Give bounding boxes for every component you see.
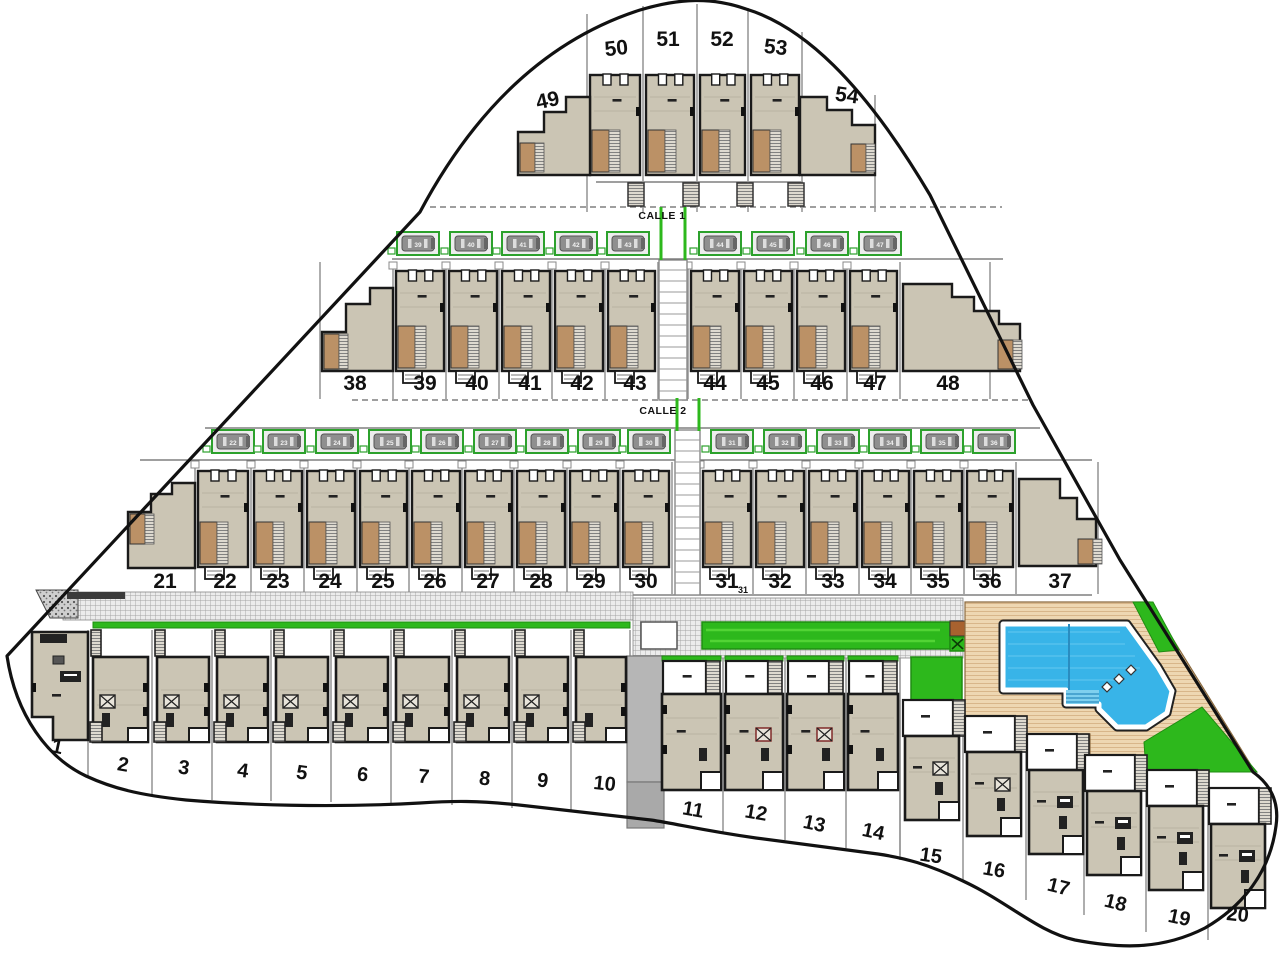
- terrace-notch: [489, 728, 509, 742]
- roof-notch: [493, 470, 501, 481]
- plot-corner-marker: [405, 461, 413, 468]
- building-unit: [307, 470, 355, 579]
- plot-number-45: 45: [756, 372, 780, 395]
- svg-text:32: 32: [781, 440, 789, 447]
- patio: [467, 522, 484, 564]
- door: [585, 713, 593, 727]
- building-unit: [1027, 734, 1089, 854]
- plot-number-25: 25: [371, 570, 395, 593]
- parking-space: 29: [569, 430, 620, 453]
- terrace-notch: [763, 772, 783, 790]
- parking-corner-marker: [619, 446, 626, 452]
- stairs: [869, 326, 880, 368]
- plot-corner-marker: [616, 461, 624, 468]
- stairs: [829, 661, 843, 694]
- building-unit: [502, 270, 550, 383]
- patio: [758, 522, 775, 564]
- stairs: [828, 522, 839, 564]
- building-unit: [608, 270, 655, 383]
- svg-text:23: 23: [280, 440, 288, 447]
- plot-number-23: 23: [266, 570, 289, 593]
- roof-notch: [732, 470, 740, 481]
- patio: [200, 522, 217, 564]
- svg-text:47: 47: [876, 242, 884, 249]
- roof-notch: [529, 470, 537, 481]
- pool-gate-icon: [950, 637, 965, 651]
- roof-notch: [651, 470, 659, 481]
- roof-notch: [408, 270, 416, 281]
- plot-corner-marker: [495, 262, 503, 269]
- stairs: [145, 514, 154, 544]
- building-unit: [1085, 755, 1147, 875]
- patio: [705, 522, 722, 564]
- wall-tick: [383, 683, 388, 692]
- svg-text:41: 41: [519, 242, 527, 249]
- wall-mark: [592, 495, 601, 498]
- parking-corner-marker: [388, 248, 395, 254]
- patio: [398, 326, 415, 368]
- building-unit: [623, 470, 669, 579]
- roof-notch: [514, 270, 522, 281]
- table: [60, 671, 81, 682]
- stairs: [665, 130, 676, 172]
- patio: [916, 522, 933, 564]
- plot-number-4: 4: [236, 759, 251, 782]
- plot-number-46: 46: [810, 372, 833, 395]
- entry-step: [154, 722, 166, 742]
- plot-corner-marker: [601, 262, 609, 269]
- stairs: [986, 522, 997, 564]
- wall-mark: [629, 295, 638, 298]
- stairs: [627, 326, 638, 368]
- wall-mark: [471, 295, 480, 298]
- plot-number-32: 32: [768, 570, 791, 593]
- parking-space: 43: [598, 232, 649, 255]
- parking-corner-marker: [412, 446, 419, 452]
- wall-mark: [936, 495, 945, 498]
- entry-step: [393, 722, 405, 742]
- parking-corner-marker: [702, 446, 709, 452]
- terrace-notch: [128, 728, 148, 742]
- street-label-calle-1: CALLE 1: [638, 210, 685, 222]
- door: [997, 798, 1005, 811]
- plot-number-49: 49: [534, 87, 562, 114]
- stairs: [706, 661, 720, 694]
- parking-corner-marker: [797, 248, 804, 254]
- patio: [702, 130, 719, 172]
- parking-space: 35: [912, 430, 963, 453]
- stairs: [274, 630, 284, 656]
- building-unit: [454, 630, 509, 742]
- plot-number-12: 12: [743, 800, 769, 826]
- plot-number-53: 53: [763, 35, 789, 60]
- roof-notch: [336, 470, 344, 481]
- entry-step: [514, 722, 526, 742]
- building-unit: [590, 74, 640, 175]
- building-unit: [848, 656, 898, 790]
- wall-mark: [381, 495, 390, 498]
- roof-notch: [756, 270, 764, 281]
- wall-tick: [735, 303, 739, 312]
- wall-tick: [263, 683, 268, 692]
- parking-space: 24: [307, 430, 358, 453]
- green-area: [911, 657, 962, 701]
- plot-number-30: 30: [634, 570, 657, 593]
- parking-space: 45: [743, 232, 794, 255]
- wall-tick: [905, 503, 909, 512]
- svg-text:22: 22: [229, 440, 237, 447]
- wall-tick: [440, 303, 444, 312]
- svg-text:25: 25: [386, 440, 394, 447]
- wall-mark: [329, 495, 338, 498]
- wall-mark: [668, 99, 677, 102]
- roof-notch: [773, 270, 781, 281]
- roof-notch: [283, 470, 291, 481]
- wall-mark: [276, 495, 285, 498]
- pedestrian-path: [675, 430, 700, 595]
- driveway: [627, 656, 664, 782]
- stairs: [1093, 539, 1102, 564]
- parking-space: 44: [690, 232, 741, 255]
- plot-corner-marker: [563, 461, 571, 468]
- terrace-notch: [308, 728, 328, 742]
- plot-31-subscript: 31: [738, 585, 748, 595]
- building-unit: [787, 656, 844, 790]
- street-label-calle-2: CALLE 2: [639, 405, 686, 417]
- door: [761, 748, 769, 761]
- roof-notch: [388, 470, 396, 481]
- wall-tick: [204, 707, 209, 716]
- wall-tick: [351, 503, 355, 512]
- wall-tick: [651, 303, 655, 312]
- roof-notch: [874, 470, 882, 481]
- roof-notch: [780, 74, 788, 85]
- roof-notch: [228, 470, 236, 481]
- patio: [451, 326, 468, 368]
- plot-number-2: 2: [116, 753, 131, 777]
- wall-tick: [204, 683, 209, 692]
- plot-corner-marker: [802, 461, 810, 468]
- building-unit: [360, 470, 407, 579]
- patio: [969, 522, 986, 564]
- terrace-notch: [939, 802, 959, 820]
- parking-corner-marker: [860, 446, 867, 452]
- roof-notch: [603, 74, 611, 85]
- wall-tick: [788, 303, 792, 312]
- wall-mark: [831, 495, 840, 498]
- wall-tick: [323, 707, 328, 716]
- building-unit: [517, 470, 565, 579]
- building-unit: [396, 270, 444, 383]
- plot-corner-marker: [548, 262, 556, 269]
- stairs: [155, 630, 165, 656]
- roof-notch: [862, 270, 870, 281]
- stairs: [215, 630, 225, 656]
- roof-notch: [424, 470, 432, 481]
- roof-notch: [763, 74, 771, 85]
- roof-notch: [546, 470, 554, 481]
- door: [876, 748, 884, 761]
- patio: [572, 522, 589, 564]
- door: [166, 713, 174, 727]
- patio: [799, 326, 816, 368]
- parking-corner-marker: [743, 248, 750, 254]
- wall-mark: [773, 99, 782, 102]
- terrace-notch: [248, 728, 268, 742]
- wall-mark: [725, 495, 734, 498]
- building-unit: [751, 74, 799, 175]
- wall-mark: [52, 694, 61, 697]
- patio: [557, 326, 574, 368]
- wall-tick: [563, 683, 568, 692]
- stairs: [933, 522, 944, 564]
- parking-corner-marker: [569, 446, 576, 452]
- terrace-notch: [606, 728, 626, 742]
- stairs: [710, 326, 721, 368]
- parking-corner-marker: [254, 446, 261, 452]
- patio: [811, 522, 828, 564]
- plot-corner-marker: [247, 461, 255, 468]
- parking-space: 47: [850, 232, 901, 255]
- roof-notch: [715, 470, 723, 481]
- stairs: [334, 630, 344, 656]
- plot-number-28: 28: [529, 570, 553, 593]
- entry-step: [454, 722, 466, 742]
- plot-corner-marker: [300, 461, 308, 468]
- parking-corner-marker: [912, 446, 919, 452]
- parking-space: 33: [808, 430, 859, 453]
- wall-mark: [486, 495, 495, 498]
- roof-notch: [567, 270, 575, 281]
- patio: [504, 326, 521, 368]
- stairs: [1259, 788, 1271, 824]
- parking-space: 27: [465, 430, 516, 453]
- stairs: [468, 326, 479, 368]
- parking-corner-marker: [493, 248, 500, 254]
- plot-number-10: 10: [592, 772, 616, 796]
- parking-space: 40: [441, 232, 492, 255]
- terrace-notch: [548, 728, 568, 742]
- building-unit: [700, 74, 745, 175]
- wall-mark: [524, 295, 533, 298]
- wall-tick: [143, 683, 148, 692]
- building-unit: [128, 483, 195, 568]
- svg-text:34: 34: [886, 440, 894, 447]
- building-unit: [862, 470, 909, 579]
- courtyard: [965, 716, 1015, 752]
- building-unit: [965, 716, 1027, 836]
- svg-text:30: 30: [645, 440, 653, 447]
- parking-corner-marker: [808, 446, 815, 452]
- wall-mark: [713, 295, 722, 298]
- parking-corner-marker: [307, 446, 314, 452]
- parking-corner-marker: [203, 446, 210, 452]
- svg-text:44: 44: [716, 242, 724, 249]
- stairs: [722, 522, 733, 564]
- parking-space: 25: [360, 430, 411, 453]
- wall-mark: [988, 495, 997, 498]
- svg-text:33: 33: [834, 440, 842, 447]
- svg-text:28: 28: [543, 440, 551, 447]
- building-unit: [254, 470, 302, 579]
- stairs: [415, 326, 426, 368]
- parking-space: 41: [493, 232, 544, 255]
- wall-tick: [893, 303, 897, 312]
- plot-corner-marker: [790, 262, 798, 269]
- plot-number-5: 5: [295, 761, 309, 784]
- door: [405, 713, 413, 727]
- wall-tick: [841, 303, 845, 312]
- stairs: [326, 522, 337, 564]
- patio: [414, 522, 431, 564]
- wall-tick: [504, 683, 509, 692]
- entry-step: [273, 722, 285, 742]
- roof-notch: [319, 470, 327, 481]
- wall-mark: [577, 295, 586, 298]
- roof-notch: [712, 74, 720, 85]
- plot-corner-marker: [855, 461, 863, 468]
- terrace-notch: [368, 728, 388, 742]
- wall-tick: [298, 503, 302, 512]
- wall-tick: [504, 707, 509, 716]
- wall-tick: [561, 503, 565, 512]
- roof-notch: [926, 470, 934, 481]
- patio: [746, 326, 763, 368]
- wall-tick: [741, 107, 745, 116]
- terrace-notch: [701, 772, 721, 790]
- wall-mark: [778, 495, 787, 498]
- plot-corner-marker: [843, 262, 851, 269]
- wall-tick: [546, 303, 550, 312]
- door: [526, 713, 534, 727]
- stairs: [816, 326, 827, 368]
- plot-number-17: 17: [1045, 874, 1072, 901]
- stairs: [1135, 755, 1147, 791]
- stairs: [273, 522, 284, 564]
- wall-mark: [871, 295, 880, 298]
- wall-tick: [323, 683, 328, 692]
- stairs: [431, 522, 442, 564]
- wall-mark: [766, 295, 775, 298]
- wall-tick: [508, 503, 512, 512]
- site-plan-drawing: 3940414243444546472223242526272829303132…: [0, 0, 1280, 960]
- building-unit: [32, 632, 88, 740]
- roof-notch: [531, 270, 539, 281]
- building-unit: [903, 700, 965, 820]
- parking-corner-marker: [360, 446, 367, 452]
- parking-corner-marker: [441, 248, 448, 254]
- utility-pad: [641, 622, 677, 649]
- plot-number-47: 47: [863, 372, 886, 395]
- door: [822, 748, 830, 761]
- wall-tick: [444, 683, 449, 692]
- stairs: [881, 522, 892, 564]
- patio: [362, 522, 379, 564]
- svg-text:26: 26: [438, 440, 446, 447]
- wall-tick: [563, 707, 568, 716]
- terrace-notch: [878, 772, 898, 790]
- plot-number-26: 26: [423, 570, 446, 593]
- building-unit: [273, 630, 328, 742]
- stairs: [379, 522, 390, 564]
- plot-number-9: 9: [536, 770, 549, 793]
- parking-space: 28: [517, 430, 568, 453]
- roof-notch: [266, 470, 274, 481]
- roof-notch: [675, 74, 683, 85]
- wall-tick: [795, 107, 799, 116]
- wall-tick: [493, 303, 497, 312]
- stairs: [484, 522, 495, 564]
- roof-notch: [821, 470, 829, 481]
- building-unit: [1209, 788, 1271, 908]
- plot-number-20: 20: [1225, 903, 1249, 927]
- building-unit: [214, 630, 268, 742]
- parking-space: 34: [860, 430, 911, 453]
- courtyard: [1027, 734, 1077, 770]
- roof-notch: [441, 470, 449, 481]
- stairwell: [788, 183, 804, 206]
- terrace-notch: [1001, 818, 1021, 836]
- wall-mark: [720, 99, 729, 102]
- roof-notch: [372, 470, 380, 481]
- stairwell: [683, 183, 699, 206]
- svg-text:39: 39: [414, 242, 422, 249]
- roof-notch: [478, 270, 486, 281]
- building-unit: [449, 270, 497, 383]
- wall-tick: [383, 707, 388, 716]
- terrace-notch: [189, 728, 209, 742]
- parking-corner-marker: [517, 446, 524, 452]
- wall-mark: [883, 495, 892, 498]
- stairs: [1197, 770, 1209, 806]
- plot-corner-marker: [749, 461, 757, 468]
- roof-notch: [211, 470, 219, 481]
- building-unit: [1019, 479, 1102, 566]
- door: [1241, 870, 1249, 883]
- wall-tick: [599, 303, 603, 312]
- stairs: [883, 661, 897, 694]
- svg-text:40: 40: [467, 242, 475, 249]
- wall-tick: [263, 707, 268, 716]
- svg-text:42: 42: [572, 242, 580, 249]
- parking-space: 32: [755, 430, 806, 453]
- parking-space: 39: [388, 232, 439, 255]
- stairs: [953, 700, 965, 736]
- stairwell: [737, 183, 753, 206]
- wall-tick: [403, 503, 407, 512]
- stairs: [455, 630, 465, 656]
- wall-segment: [67, 592, 125, 599]
- parking-space: 30: [619, 430, 670, 453]
- terrace-notch: [1063, 836, 1083, 854]
- plot-number-3: 3: [177, 756, 191, 779]
- wall-tick: [800, 503, 804, 512]
- roof-notch: [943, 470, 951, 481]
- building-unit: [744, 270, 792, 383]
- wall-mark: [613, 99, 622, 102]
- patio: [309, 522, 326, 564]
- svg-text:31: 31: [728, 440, 736, 447]
- plot-corner-marker: [737, 262, 745, 269]
- door: [102, 713, 110, 727]
- patio: [256, 522, 273, 564]
- plot-number-11: 11: [681, 797, 706, 822]
- building-unit: [393, 630, 449, 742]
- wall-tick: [1009, 503, 1013, 512]
- roof-notch: [658, 74, 666, 85]
- patio: [1078, 539, 1093, 564]
- plot-corner-marker: [960, 461, 968, 468]
